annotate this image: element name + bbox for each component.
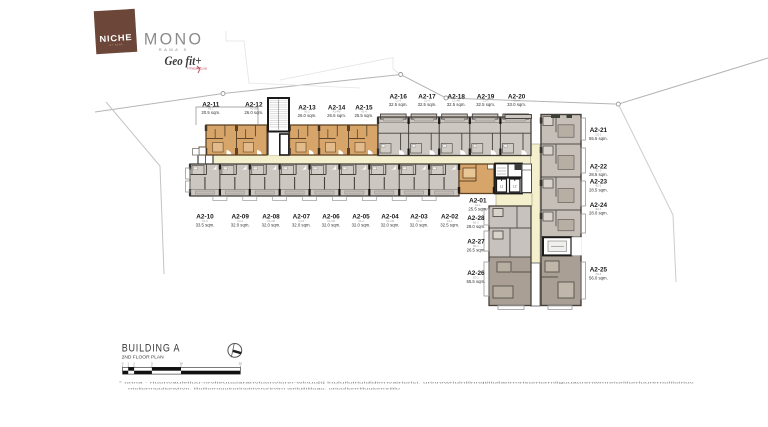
svg-text:32.0 sqm.: 32.0 sqm. xyxy=(231,222,250,227)
svg-text:32.0 sqm.: 32.0 sqm. xyxy=(292,222,311,227)
svg-text:32.5 sqm.: 32.5 sqm. xyxy=(418,102,437,107)
svg-text:28.5 sqm.: 28.5 sqm. xyxy=(589,187,608,192)
svg-text:55.5 sqm.: 55.5 sqm. xyxy=(466,279,485,284)
svg-text:32.0 sqm.: 32.0 sqm. xyxy=(322,222,341,227)
svg-text:1: 1 xyxy=(127,362,129,366)
svg-text:32.5 sqm.: 32.5 sqm. xyxy=(447,102,466,107)
svg-text:5: 5 xyxy=(151,362,153,366)
svg-text:32.0 sqm.: 32.0 sqm. xyxy=(381,222,400,227)
svg-text:10: 10 xyxy=(179,362,183,366)
svg-text:32.0 sqm.: 32.0 sqm. xyxy=(410,222,429,227)
svg-text:26.5 sqm.: 26.5 sqm. xyxy=(327,113,346,118)
svg-text:BUILDING A: BUILDING A xyxy=(122,343,181,355)
svg-text:32.5 sqm.: 32.5 sqm. xyxy=(440,222,459,227)
svg-text:2ND FLOOR PLAN: 2ND FLOOR PLAN xyxy=(122,355,165,361)
svg-text:26.0 sqm.: 26.0 sqm. xyxy=(244,110,263,115)
svg-text:29.0 sqm.: 29.0 sqm. xyxy=(466,224,485,229)
svg-text:33.0 sqm.: 33.0 sqm. xyxy=(507,102,526,107)
svg-text:32.5 sqm.: 32.5 sqm. xyxy=(389,102,408,107)
svg-text:33.5 sqm.: 33.5 sqm. xyxy=(196,222,215,227)
svg-text:26.5 sqm.: 26.5 sqm. xyxy=(467,248,486,253)
svg-text:rrioliorrnouliorwirvn. liluili: rrioliorrnouliorwirvn. liluiliorrnuuiror… xyxy=(128,387,401,391)
svg-text:32.0 sqm.: 32.0 sqm. xyxy=(262,222,281,227)
svg-text:56.0 sqm.: 56.0 sqm. xyxy=(589,276,608,281)
svg-text:NICHE: NICHE xyxy=(99,32,133,44)
svg-text:32.0 sqm.: 32.0 sqm. xyxy=(352,222,371,227)
svg-text:L2: L2 xyxy=(513,185,517,189)
svg-text:2: 2 xyxy=(133,362,135,366)
svg-text:RAMA 9: RAMA 9 xyxy=(159,48,189,52)
svg-text:0: 0 xyxy=(122,362,124,366)
svg-text:* unna - riuonvauleiluu-nrvlie: * unna - riuonvauleiluu-nrvlieuuciaranvi… xyxy=(119,381,695,385)
svg-text:32.5 sqm.: 32.5 sqm. xyxy=(476,102,495,107)
svg-text:L1: L1 xyxy=(500,185,504,189)
svg-text:26.0 sqm.: 26.0 sqm. xyxy=(298,113,317,118)
svg-text:25.5 sqm.: 25.5 sqm. xyxy=(354,113,373,118)
svg-text:55.5 sqm.: 55.5 sqm. xyxy=(589,136,608,141)
svg-text:25.5 sqm.: 25.5 sqm. xyxy=(468,207,487,212)
svg-text:MONO: MONO xyxy=(144,30,204,49)
svg-text:20: 20 xyxy=(239,362,243,366)
svg-text:28.5 sqm.: 28.5 sqm. xyxy=(589,172,608,177)
svg-text:28.0 sqm.: 28.0 sqm. xyxy=(589,211,608,216)
svg-text:20.5 sqm.: 20.5 sqm. xyxy=(201,110,220,115)
